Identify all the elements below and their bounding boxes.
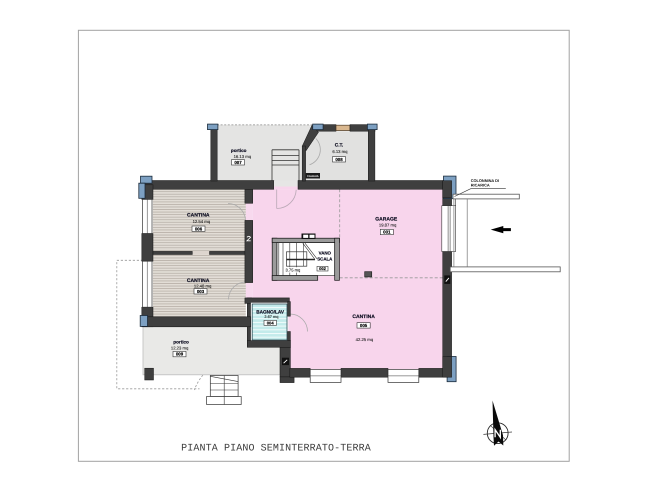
svg-text:SCALA: SCALA bbox=[317, 257, 333, 262]
svg-text:12.54 mq: 12.54 mq bbox=[193, 219, 211, 224]
svg-text:007: 007 bbox=[234, 160, 242, 165]
svg-text:portico: portico bbox=[231, 148, 247, 153]
svg-text:008: 008 bbox=[335, 157, 343, 162]
svg-text:2.67 mq: 2.67 mq bbox=[264, 314, 278, 319]
svg-text:CALDAIA: CALDAIA bbox=[307, 175, 319, 178]
svg-text:CANTINA: CANTINA bbox=[352, 314, 375, 320]
svg-text:006: 006 bbox=[195, 226, 203, 231]
svg-text:16.13 mq: 16.13 mq bbox=[234, 154, 252, 159]
svg-text:12.23 mq: 12.23 mq bbox=[171, 345, 189, 350]
svg-text:009: 009 bbox=[176, 352, 184, 357]
svg-text:42.25 mq: 42.25 mq bbox=[356, 337, 374, 342]
svg-text:portico: portico bbox=[173, 340, 189, 345]
svg-text:CANTINA: CANTINA bbox=[187, 212, 210, 218]
svg-text:12.48 mq: 12.48 mq bbox=[194, 284, 212, 289]
svg-text:19.87 mq: 19.87 mq bbox=[379, 222, 397, 227]
svg-text:005: 005 bbox=[360, 323, 368, 328]
svg-text:RICARICA: RICARICA bbox=[471, 183, 490, 188]
svg-text:002: 002 bbox=[319, 266, 326, 271]
svg-text:004: 004 bbox=[267, 320, 275, 325]
svg-text:3.75 mq: 3.75 mq bbox=[286, 268, 302, 273]
svg-text:001: 001 bbox=[383, 230, 391, 235]
svg-text:6.13 mq: 6.13 mq bbox=[332, 149, 348, 154]
svg-text:VANO: VANO bbox=[319, 251, 332, 256]
svg-text:PIANTA PIANO SEMINTERRATO-TERR: PIANTA PIANO SEMINTERRATO-TERRA bbox=[181, 443, 371, 454]
svg-text:C.T.: C.T. bbox=[335, 143, 344, 149]
svg-text:003: 003 bbox=[197, 289, 205, 294]
